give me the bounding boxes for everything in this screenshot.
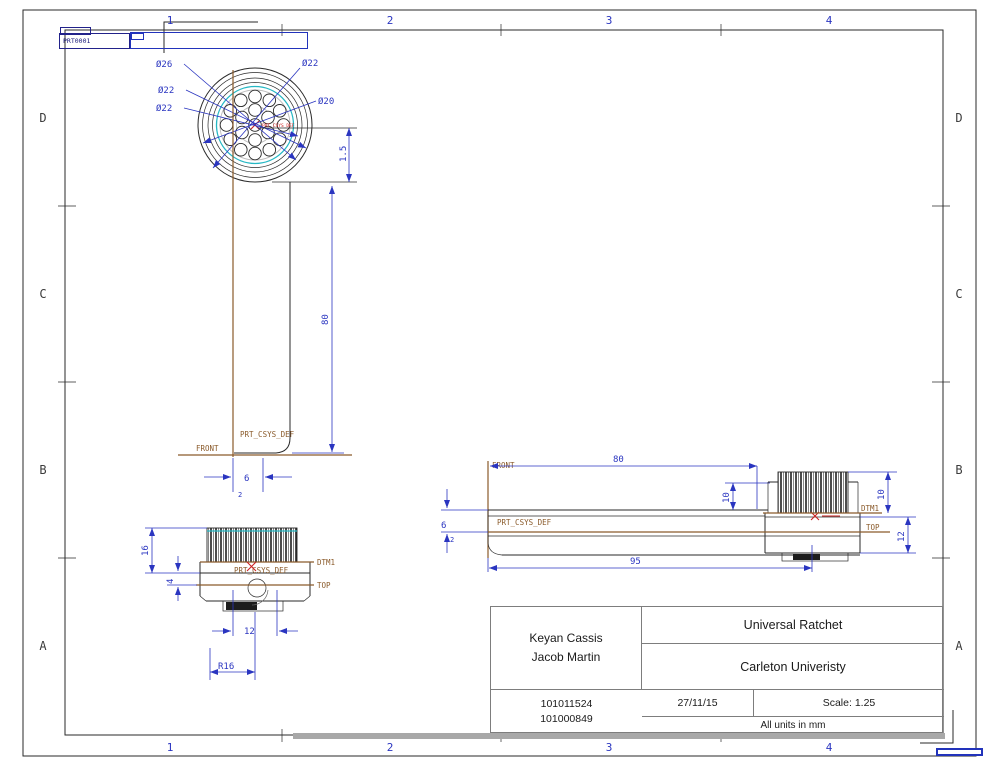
knurl-side [778, 472, 848, 513]
dim-1_5[interactable]: 1.5 [339, 146, 349, 162]
dim-handle-2[interactable]: 2 [238, 491, 242, 499]
dtm1-label-front[interactable]: DTM1 [317, 558, 335, 567]
selection-rectangle-handle[interactable] [131, 33, 144, 40]
zone-row-d-left: D [39, 111, 46, 125]
front-label-side[interactable]: FRONT [492, 461, 515, 470]
zone-col-4-bottom: 4 [826, 741, 833, 754]
csys-label-handle[interactable]: PRT_CSYS_DEF [240, 430, 295, 439]
csys-label-front[interactable]: PRT_CSYS_DEF [234, 566, 289, 575]
zone-row-c-right: C [955, 287, 962, 301]
dim-handle-80[interactable]: 80 [321, 314, 331, 325]
sheet-indicator[interactable] [936, 748, 983, 756]
dim-side-6[interactable]: 6 [441, 521, 446, 531]
dim-front-16[interactable]: 16 [141, 545, 151, 556]
drawing-scale: Scale: 1.25 [823, 697, 876, 709]
dim-dia22-left2[interactable]: Ø22 [156, 103, 172, 114]
zone-col-4-top: 4 [826, 14, 833, 27]
zone-col-1-bottom: 1 [167, 741, 174, 754]
zone-row-c-left: C [39, 287, 46, 301]
view-top-circular[interactable]: PRT_CSYS_DEF Ø26 Ø22 Ø22 Ø22 Ø20 1.5 [156, 58, 357, 182]
dim-side-12[interactable]: 12 [897, 531, 907, 542]
zone-col-2-bottom: 2 [387, 741, 394, 754]
zone-col-3-top: 3 [606, 14, 613, 27]
pawl-button-front [226, 602, 257, 610]
drawing-sheet: 1 2 3 4 1 2 3 4 D C B A D C B A [0, 0, 1002, 766]
dim-side-10-right[interactable]: 10 [877, 489, 887, 500]
title-block: Keyan Cassis Jacob Martin Universal Ratc… [490, 606, 943, 733]
model-tab[interactable]: PRT0001 [59, 33, 130, 49]
units-note: All units in mm [760, 720, 825, 731]
front-label-handle[interactable]: FRONT [196, 444, 219, 453]
dim-dia26[interactable]: Ø26 [156, 59, 172, 70]
title-block-date-cell: 27/11/15 [642, 689, 754, 716]
dim-side-80[interactable]: 80 [613, 455, 624, 465]
student-id-2: 101000849 [540, 712, 593, 727]
organization-name: Carleton Univeristy [740, 660, 846, 674]
dim-handle-6[interactable]: 6 [244, 474, 249, 484]
dim-front-r16[interactable]: R16 [218, 662, 234, 672]
title-block-title-cell: Universal Ratchet [642, 607, 944, 644]
author-2: Jacob Martin [532, 648, 601, 667]
drawing-title: Universal Ratchet [744, 618, 843, 632]
title-block-units-cell: All units in mm [642, 716, 944, 734]
selection-rectangle[interactable] [130, 32, 308, 49]
student-id-1: 101011524 [541, 697, 593, 712]
top-label-side[interactable]: TOP [866, 523, 880, 532]
dim-side-10-mid[interactable]: 10 [722, 492, 732, 503]
dim-dia22-left1[interactable]: Ø22 [158, 85, 174, 96]
zone-row-a-right: A [955, 639, 963, 653]
zone-col-1-top: 1 [167, 14, 174, 27]
pawl-button-side [793, 554, 820, 560]
view-side-ratchet[interactable]: FRONT 80 PRT_CSYS_DEF 6 2 10 [441, 455, 916, 572]
dtm1-label-side[interactable]: DTM1 [861, 504, 879, 513]
title-block-scale-cell: Scale: 1.25 [754, 689, 944, 716]
dim-dia22-topright[interactable]: Ø22 [302, 58, 318, 69]
knurl-front [207, 528, 297, 562]
top-label-front[interactable]: TOP [317, 581, 331, 590]
zone-row-d-right: D [955, 111, 962, 125]
csys-label-side[interactable]: PRT_CSYS_DEF [497, 518, 552, 527]
dim-side-2[interactable]: 2 [450, 536, 454, 544]
zone-row-a-left: A [39, 639, 47, 653]
dim-dia20[interactable]: Ø20 [318, 96, 334, 107]
dim-front-12[interactable]: 12 [244, 627, 255, 637]
zone-col-3-bottom: 3 [606, 741, 613, 754]
title-block-ids-cell: 101011524 101000849 [491, 689, 642, 734]
view-front-head[interactable]: DTM1 TOP PRT_CSYS_DEF 16 4 12 R16 [141, 528, 335, 680]
dim-front-4[interactable]: 4 [166, 579, 176, 584]
zone-row-b-right: B [955, 463, 962, 477]
title-block-organization-cell: Carleton Univeristy [642, 644, 944, 689]
title-block-authors-cell: Keyan Cassis Jacob Martin [491, 607, 642, 689]
zone-row-b-left: B [39, 463, 46, 477]
drawing-date: 27/11/15 [677, 697, 717, 709]
dim-side-95[interactable]: 95 [630, 557, 641, 567]
author-1: Keyan Cassis [529, 629, 602, 648]
zone-col-2-top: 2 [387, 14, 394, 27]
